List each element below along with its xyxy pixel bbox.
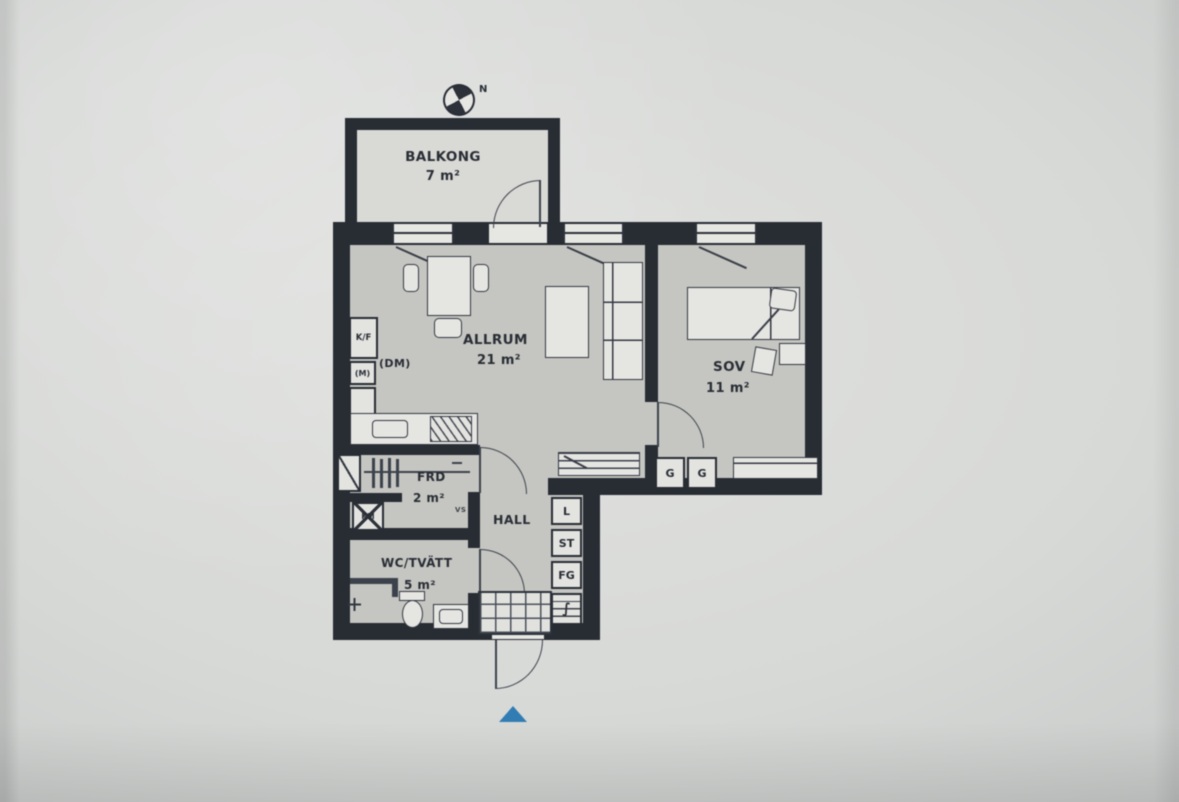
shower-partition-h (350, 578, 398, 584)
room-label-storage: FRD (417, 470, 446, 484)
balcony-wall-right (548, 118, 560, 222)
window-living-1 (392, 224, 454, 243)
pillow (769, 287, 798, 311)
balcony-wall-left (345, 118, 357, 222)
microwave-cabinet: (M) (349, 361, 376, 385)
closet-cleaning: ST (551, 529, 582, 557)
room-label-balcony: BALKONG (393, 149, 493, 165)
area-label-bath: 5 m² (404, 578, 436, 592)
hanger-2 (380, 459, 383, 488)
washbasin-bowl (439, 609, 463, 624)
closet-linen-label: L (563, 505, 570, 518)
dining-table (427, 256, 471, 316)
room-label-bath: WC/TVÄTT (381, 556, 452, 570)
fridge-freezer-cabinet: K/F (349, 317, 378, 359)
closet-fg: FG (551, 561, 582, 589)
shower-partition-v (392, 578, 398, 597)
wardrobe-g2-label: G (697, 467, 706, 480)
coffee-table (545, 286, 589, 358)
floor-plan: K/F (M) (DM) KM L ST FG ∫ G G N BALKONG … (0, 0, 1179, 802)
hanger-1 (372, 458, 375, 488)
washing-machine-label: KM (361, 512, 374, 521)
washing-machine: KM (352, 502, 384, 531)
entrance-door-arc (495, 640, 543, 689)
wardrobe-g1-label: G (665, 467, 674, 480)
frd-door-leaf (479, 447, 481, 493)
electrical-panel: ∫ (551, 593, 582, 625)
window-living-2 (563, 224, 624, 243)
toilet-bowl (402, 600, 423, 628)
room-label-hall: HALL (493, 512, 531, 527)
dining-chair-right (473, 264, 489, 292)
shaft-vs-label: VS (455, 506, 466, 514)
entrance-door-leaf (495, 640, 497, 688)
wall-right (805, 222, 822, 495)
sofa (603, 262, 643, 380)
hanger-4 (396, 459, 399, 487)
wardrobe-g2: G (687, 457, 717, 489)
screen-photo-background: K/F (M) (DM) KM L ST FG ∫ G G N BALKONG … (0, 0, 1179, 802)
wall-km-niche (333, 493, 402, 502)
area-label-living: 21 m² (477, 353, 521, 368)
hanger-3 (388, 458, 391, 488)
wc-door-leaf (479, 549, 481, 593)
window-bedroom (695, 224, 757, 243)
bedside-chair (751, 346, 777, 375)
sideboard-radiator (558, 452, 640, 476)
balcony-door-leaf (539, 180, 541, 227)
dining-chair-bottom (434, 318, 462, 338)
balcony-wall-top (345, 118, 560, 130)
wall-left (333, 222, 350, 640)
closet-linen: L (551, 497, 582, 525)
nightstand (779, 343, 806, 365)
compass-north-label: N (479, 84, 488, 95)
bedroom-door-leaf (657, 402, 659, 447)
wardrobe-g1: G (655, 457, 685, 489)
rail-hook (452, 462, 462, 464)
stove (430, 416, 472, 442)
wall-bedroom-bottom (548, 478, 822, 495)
wall-frd-top (350, 445, 480, 455)
entrance-mat-grid (478, 591, 552, 635)
wall-living-bedroom-upper (645, 245, 658, 402)
room-label-living: ALLRUM (463, 332, 528, 348)
bedroom-dresser (733, 457, 818, 479)
microwave-label: (M) (355, 369, 370, 378)
kitchen-sink (372, 420, 408, 438)
kitchen-cabinet (349, 387, 376, 415)
area-label-balcony: 7 m² (393, 169, 493, 184)
dishwasher-label: (DM) (379, 357, 411, 370)
compass-icon (437, 78, 480, 121)
fridge-freezer-label: K/F (356, 333, 372, 343)
entrance-marker-triangle (499, 706, 527, 722)
closet-cleaning-label: ST (559, 537, 574, 550)
area-label-storage: 2 m² (413, 491, 445, 505)
electrical-panel-symbol: ∫ (562, 601, 571, 617)
dining-chair-left (403, 264, 419, 292)
floor-drain (348, 598, 361, 611)
wall-closet-column (583, 495, 600, 640)
area-label-bedroom: 11 m² (706, 381, 750, 396)
shaft-box (337, 454, 361, 492)
room-label-bedroom: SOV (713, 359, 746, 375)
closet-fg-label: FG (558, 569, 575, 582)
